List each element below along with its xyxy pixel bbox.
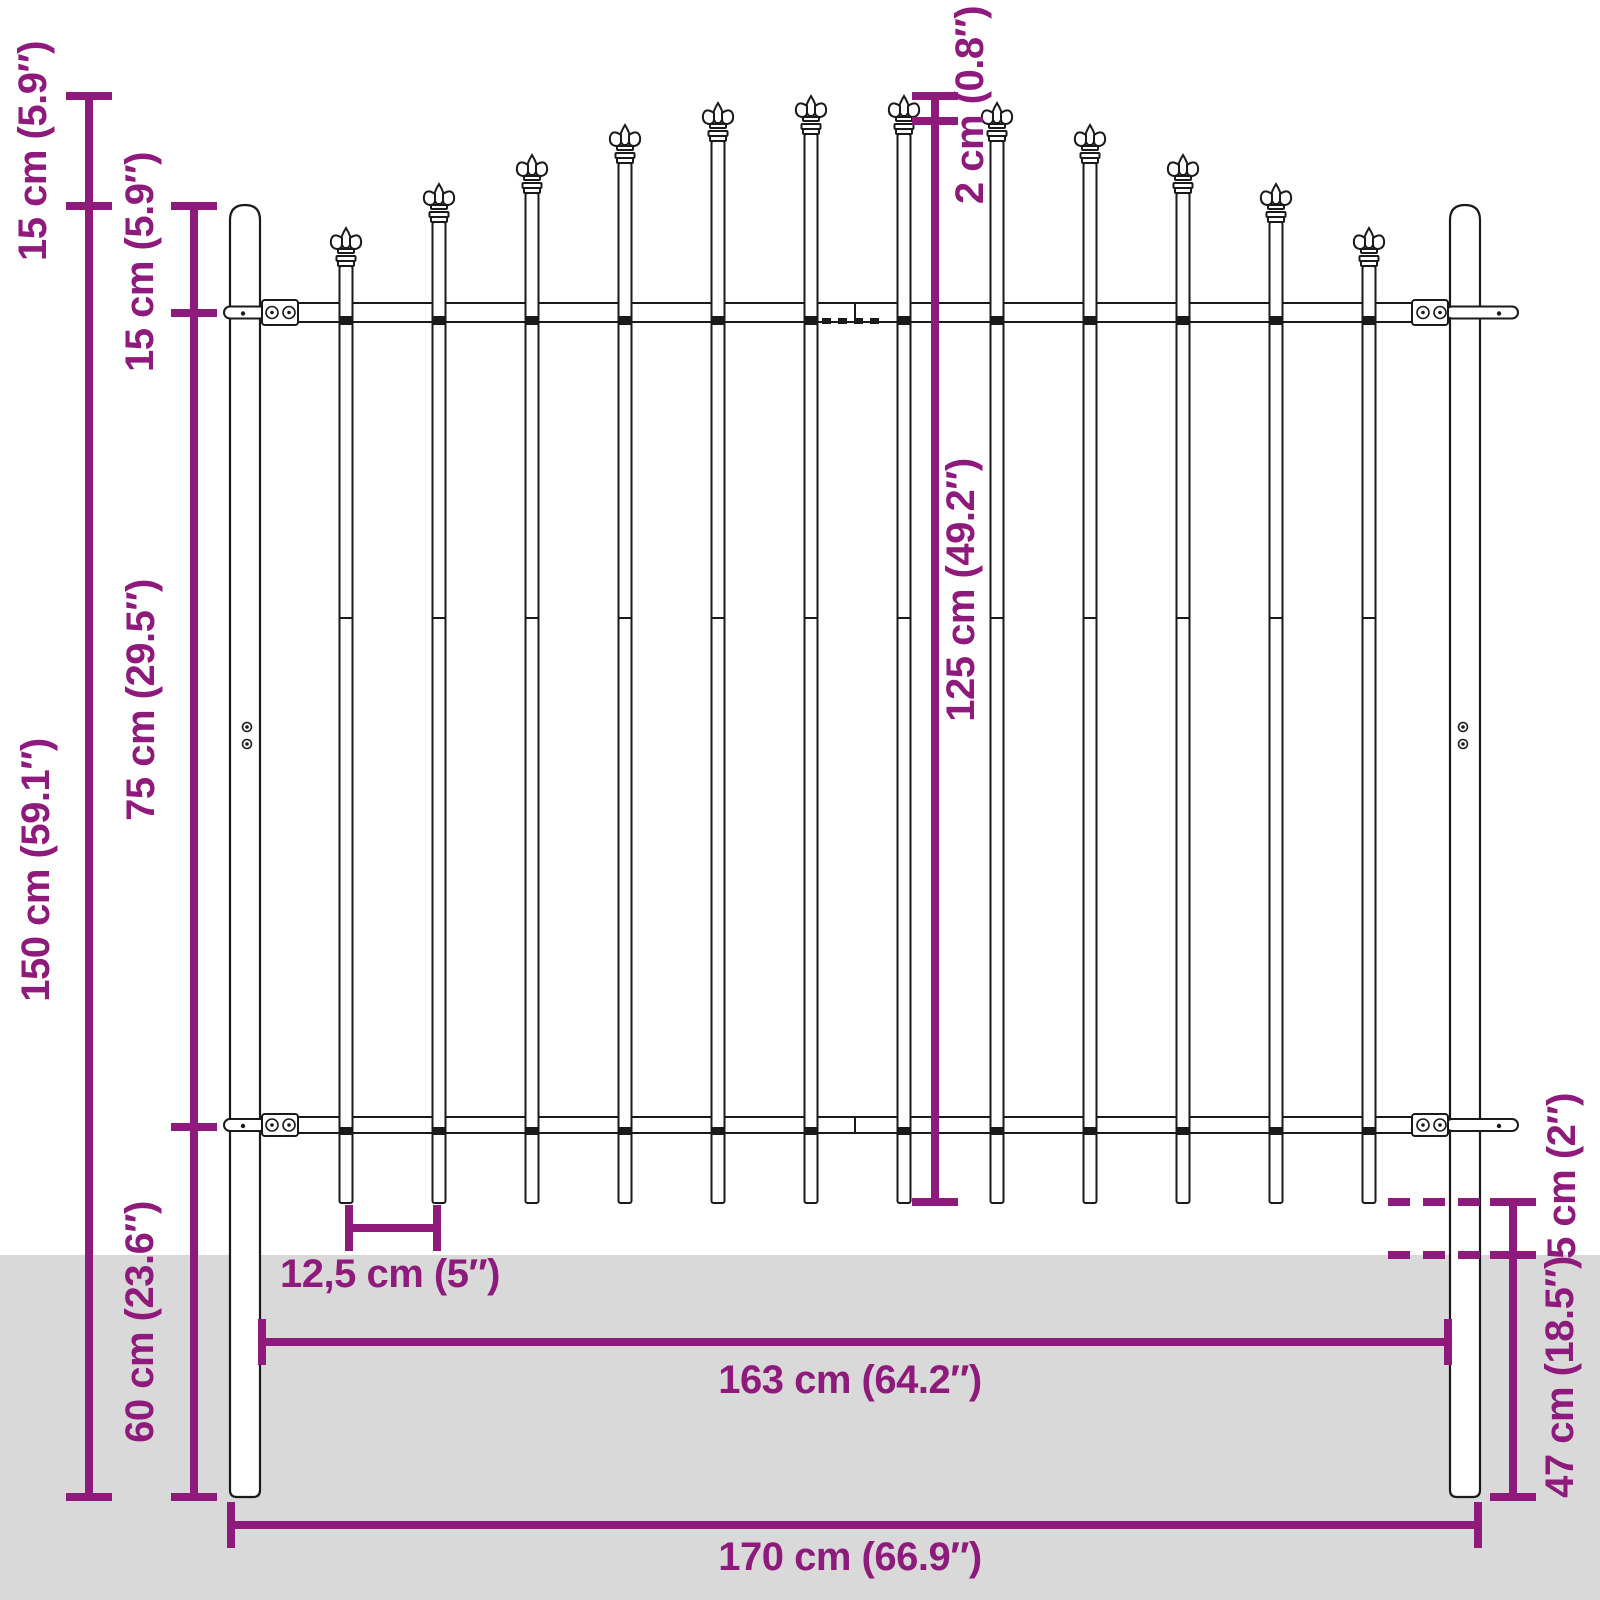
screw-icon bbox=[1421, 1123, 1425, 1127]
fence-bar bbox=[1363, 266, 1376, 1203]
dim-label-rail-spacing: 75 cm (29.5″) bbox=[121, 579, 161, 821]
post-clamp-band bbox=[1446, 307, 1518, 319]
spear-finial-base bbox=[338, 249, 354, 253]
spear-finial-leaf bbox=[1354, 235, 1365, 249]
fence-bar bbox=[340, 266, 353, 1203]
bar-rail-fixing bbox=[1176, 1127, 1191, 1135]
bar-rail-fixing bbox=[990, 1127, 1005, 1135]
dim-label-underground-depth: 60 cm (23.6″) bbox=[120, 1201, 160, 1443]
spear-collar bbox=[431, 217, 447, 222]
bar-rail-fixing bbox=[618, 1127, 633, 1135]
bar-rail-fixing bbox=[1269, 1127, 1284, 1135]
spear-collar bbox=[1082, 158, 1098, 163]
spear-finial-leaf bbox=[610, 132, 621, 146]
spear-finial-leaf bbox=[1001, 110, 1012, 124]
spear-finial-leaf bbox=[1280, 191, 1291, 205]
dim-label-panel-width: 163 cm (64.2″) bbox=[718, 1360, 981, 1400]
spear-finial-leaf bbox=[908, 103, 919, 117]
screw-icon bbox=[287, 311, 291, 315]
bar-rail-fixing bbox=[525, 1127, 540, 1135]
spear-finial-base bbox=[1361, 249, 1377, 253]
spear-finial-base bbox=[896, 117, 912, 121]
spear-collar bbox=[1268, 217, 1284, 222]
fence-bar bbox=[991, 141, 1004, 1203]
spear-finial-leaf bbox=[350, 235, 361, 249]
screw-icon bbox=[1461, 742, 1465, 746]
spear-finial-leaf bbox=[1261, 191, 1272, 205]
bar-rail-fixing bbox=[711, 1127, 726, 1135]
spear-finial-leaf bbox=[331, 235, 342, 249]
spear-finial-base bbox=[524, 176, 540, 180]
screw-icon bbox=[245, 742, 249, 746]
rail-seam-dash bbox=[854, 318, 863, 324]
bar-rail-fixing bbox=[897, 316, 912, 325]
bar-rail-fixing bbox=[432, 316, 447, 325]
spear-finial-leaf bbox=[1373, 235, 1384, 249]
spear-finial-base bbox=[1175, 176, 1191, 180]
dim-label-spear-top-offset: 15 cm (5.9″) bbox=[13, 41, 53, 261]
dim-label-panel-height: 125 cm (49.2″) bbox=[941, 458, 981, 721]
screw-icon bbox=[270, 311, 274, 315]
spear-finial-leaf bbox=[536, 162, 547, 176]
spear-finial-base bbox=[1082, 146, 1098, 150]
spear-finial-leaf bbox=[1075, 132, 1086, 146]
bar-rail-fixing bbox=[1362, 1127, 1377, 1135]
bar-rail-fixing bbox=[1176, 316, 1191, 325]
spear-finial-leaf bbox=[629, 132, 640, 146]
screw-icon bbox=[1438, 1123, 1442, 1127]
bar-rail-fixing bbox=[339, 316, 354, 325]
bar-rail-fixing bbox=[525, 316, 540, 325]
spear-collar bbox=[803, 129, 819, 134]
fence-bar bbox=[433, 222, 446, 1203]
rail-seam-dash bbox=[822, 318, 831, 324]
spear-finial-leaf bbox=[1187, 162, 1198, 176]
bar-rail-fixing bbox=[618, 316, 633, 325]
spear-collar bbox=[617, 158, 633, 163]
post-clamp-band bbox=[1446, 1119, 1518, 1131]
post-clamp-band bbox=[224, 307, 266, 319]
bar-rail-fixing bbox=[1083, 1127, 1098, 1135]
bar-rail-fixing bbox=[804, 316, 819, 325]
dim-label-bar-spacing: 12,5 cm (5″) bbox=[280, 1254, 500, 1294]
spear-finial-base bbox=[431, 205, 447, 209]
rail-seam-dash bbox=[838, 318, 847, 324]
spear-collar bbox=[710, 136, 726, 141]
fence-post-right bbox=[1450, 205, 1480, 1497]
screw-icon bbox=[245, 725, 249, 729]
dim-label-bar-ground-clearance: 5 cm (2″) bbox=[1542, 1093, 1582, 1259]
bar-rail-fixing bbox=[1269, 316, 1284, 325]
dim-label-total-height: 150 cm (59.1″) bbox=[16, 738, 56, 1001]
spear-collar bbox=[896, 129, 912, 134]
spear-finial-leaf bbox=[889, 103, 900, 117]
diagram-canvas: 15 cm (5.9″) 15 cm (5.9″) 150 cm (59.1″)… bbox=[0, 0, 1600, 1600]
bar-rail-fixing bbox=[897, 1127, 912, 1135]
spear-finial-base bbox=[803, 117, 819, 121]
spear-collar bbox=[338, 261, 354, 266]
clamp-bolt-icon bbox=[1497, 311, 1501, 315]
bar-rail-fixing bbox=[990, 316, 1005, 325]
spear-finial-base bbox=[1268, 205, 1284, 209]
post-clamp-band bbox=[224, 1119, 266, 1131]
spear-finial-base bbox=[617, 146, 633, 150]
bar-rail-fixing bbox=[804, 1127, 819, 1135]
fence-bar bbox=[712, 141, 725, 1203]
spear-finial-base bbox=[710, 124, 726, 128]
spear-finial-leaf bbox=[722, 110, 733, 124]
spear-finial-leaf bbox=[1168, 162, 1179, 176]
screw-icon bbox=[1438, 311, 1442, 315]
rail-seam-dash bbox=[870, 318, 879, 324]
screw-icon bbox=[1421, 311, 1425, 315]
spear-finial-leaf bbox=[703, 110, 714, 124]
screw-icon bbox=[270, 1123, 274, 1127]
spear-finial-leaf bbox=[796, 103, 807, 117]
bar-rail-fixing bbox=[339, 1127, 354, 1135]
fence-bar bbox=[1177, 193, 1190, 1203]
screw-icon bbox=[1461, 725, 1465, 729]
bar-rail-fixing bbox=[1362, 316, 1377, 325]
spear-collar bbox=[1175, 188, 1191, 193]
spear-finial-leaf bbox=[517, 162, 528, 176]
dim-label-total-width: 170 cm (66.9″) bbox=[718, 1537, 981, 1577]
spear-finial-leaf bbox=[443, 191, 454, 205]
fence-bar bbox=[526, 193, 539, 1203]
clamp-bolt-icon bbox=[1497, 1124, 1501, 1128]
dim-label-post-top-to-rail: 15 cm (5.9″) bbox=[120, 152, 160, 372]
fence-post-left bbox=[230, 205, 260, 1497]
fence-bar bbox=[1270, 222, 1283, 1203]
spear-collar bbox=[1361, 261, 1377, 266]
bar-rail-fixing bbox=[1083, 316, 1098, 325]
spear-collar bbox=[524, 188, 540, 193]
spear-finial-leaf bbox=[1094, 132, 1105, 146]
clamp-bolt-icon bbox=[241, 311, 245, 315]
fence-bar bbox=[805, 134, 818, 1203]
fence-bar bbox=[898, 134, 911, 1203]
spear-finial-leaf bbox=[424, 191, 435, 205]
screw-icon bbox=[287, 1123, 291, 1127]
dim-label-spear-step: 2 cm (0.8″) bbox=[950, 6, 990, 204]
spear-finial-leaf bbox=[815, 103, 826, 117]
clamp-bolt-icon bbox=[241, 1124, 245, 1128]
bar-rail-fixing bbox=[432, 1127, 447, 1135]
dim-label-post-underground: 47 cm (18.5″) bbox=[1540, 1256, 1580, 1498]
bar-rail-fixing bbox=[711, 316, 726, 325]
